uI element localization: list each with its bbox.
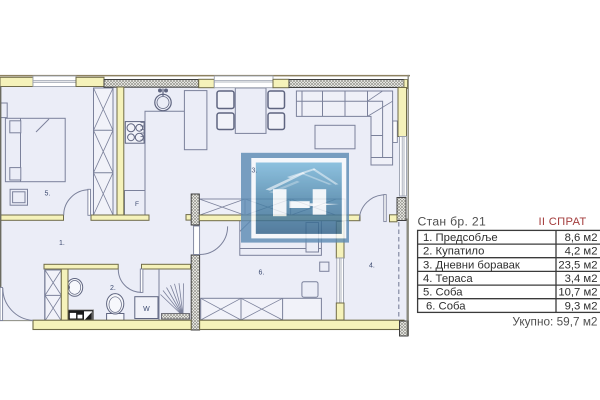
svg-text:1.: 1. — [59, 240, 65, 247]
svg-text:5.: 5. — [45, 191, 51, 198]
svg-text:4.: 4. — [369, 263, 375, 270]
svg-text:2. Купатило: 2. Купатило — [423, 246, 484, 258]
svg-text:2.: 2. — [110, 285, 116, 292]
svg-text:4,2 м2: 4,2 м2 — [565, 246, 598, 258]
svg-text:8,6 м2: 8,6 м2 — [565, 232, 598, 244]
svg-text:10,7 м2: 10,7 м2 — [558, 287, 597, 299]
svg-text:5. Соба: 5. Соба — [423, 287, 463, 299]
svg-text:3,4 м2: 3,4 м2 — [565, 273, 598, 285]
svg-text:4. Тераса: 4. Тераса — [423, 273, 473, 285]
svg-text:F: F — [135, 201, 139, 208]
svg-text:9,3 м2: 9,3 м2 — [565, 300, 598, 312]
svg-text:II СПРАТ: II СПРАТ — [539, 216, 587, 228]
svg-text:23,5 м2: 23,5 м2 — [558, 259, 597, 271]
svg-text:1. Предсобље: 1. Предсобље — [423, 232, 498, 244]
svg-text:6. Соба: 6. Соба — [426, 300, 466, 312]
svg-text:Стан бр. 21: Стан бр. 21 — [418, 214, 487, 228]
svg-text:Укупно: 59,7 м2: Укупно: 59,7 м2 — [512, 315, 597, 329]
svg-text:6.: 6. — [259, 270, 265, 277]
svg-text:3. Дневни боравак: 3. Дневни боравак — [423, 259, 520, 271]
svg-text:W: W — [143, 306, 150, 313]
svg-text:3.: 3. — [252, 168, 258, 175]
